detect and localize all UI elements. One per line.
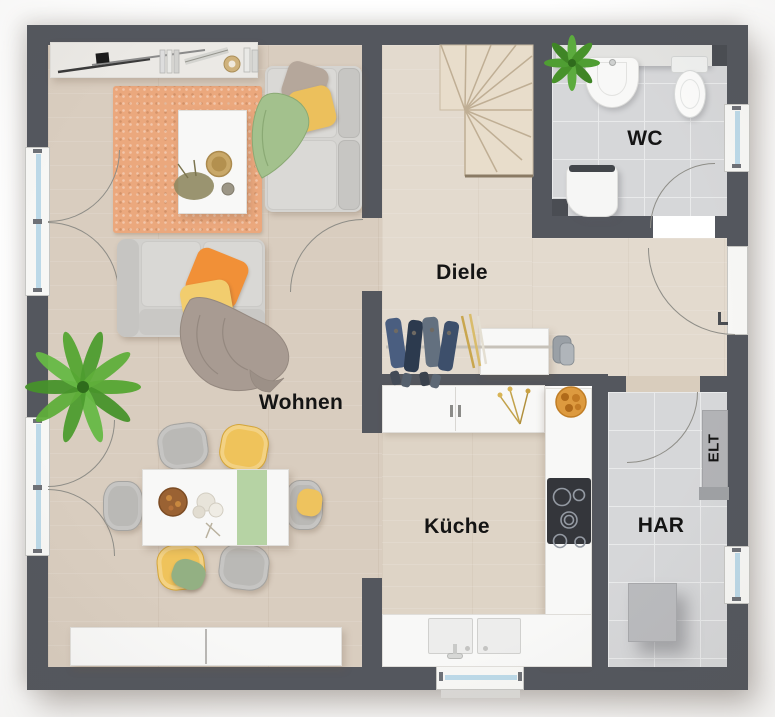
coffee-table-deco xyxy=(174,152,234,201)
palm-plant xyxy=(25,330,141,445)
cooktop-burners xyxy=(554,489,586,548)
floor-plan: Wohnen Diele WC Küche HAR ELT xyxy=(0,0,775,717)
kitchen-deco xyxy=(498,387,587,425)
staircase xyxy=(440,45,533,176)
wc-plant xyxy=(544,35,600,91)
room-label-wc: WC xyxy=(627,127,663,151)
coat-rack xyxy=(385,314,574,389)
room-label-wohnen: Wohnen xyxy=(259,391,343,415)
shelf-deco xyxy=(58,48,258,73)
room-label-har: HAR xyxy=(638,514,684,538)
room-label-kueche: Küche xyxy=(424,515,490,539)
room-label-elt: ELT xyxy=(706,434,723,463)
blanket-taupe xyxy=(180,298,288,392)
deco-layer xyxy=(0,0,775,717)
room-label-diele: Diele xyxy=(436,261,488,285)
blanket-green xyxy=(252,93,309,178)
dining-table-deco xyxy=(159,488,223,538)
